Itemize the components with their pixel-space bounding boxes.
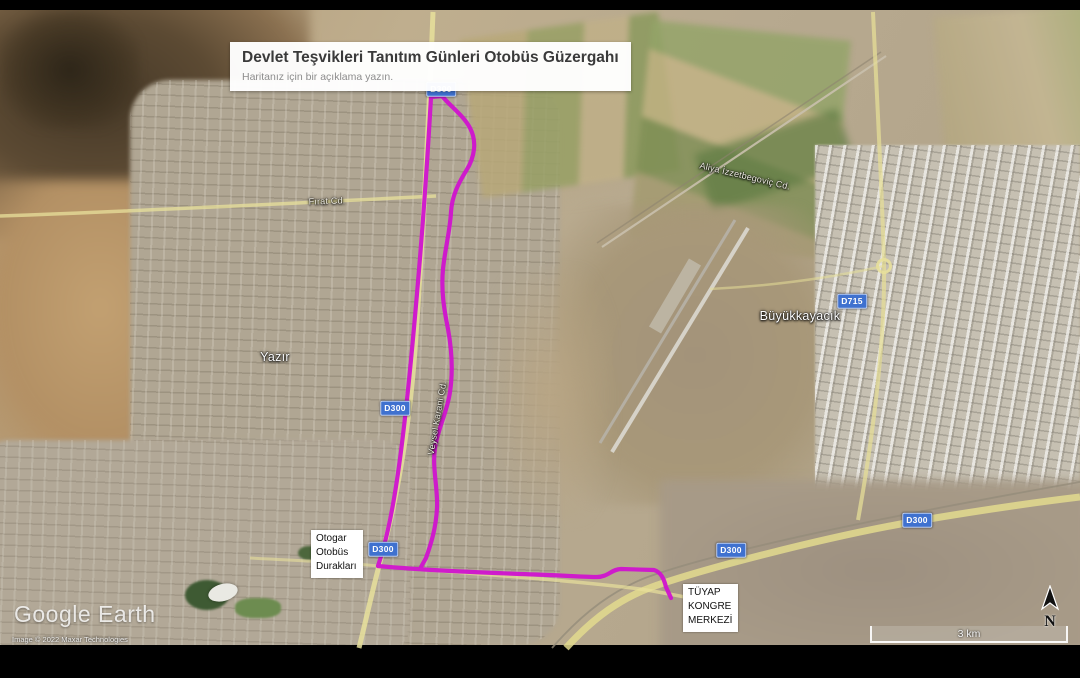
map-title: Devlet Teşvikleri Tanıtım Günleri Otobüs…: [242, 49, 619, 67]
terrain-hills-darkest: [0, 10, 140, 130]
shield-d300-interchange: D300: [716, 543, 746, 558]
compass[interactable]: N: [1037, 585, 1063, 627]
scale-bar-label: 3 km: [958, 628, 981, 640]
shield-d300-east: D300: [902, 513, 932, 528]
road-label-firat: Fırat Cd.: [308, 195, 345, 206]
placemark-otogar[interactable]: Otogar Otobüs Durakları: [311, 530, 363, 578]
north-arrow-icon: [1037, 585, 1063, 611]
map-description-placeholder[interactable]: Haritanız için bir açıklama yazın.: [242, 71, 619, 83]
compass-north-label: N: [1037, 614, 1063, 630]
shield-d300-otogar: D300: [368, 542, 398, 557]
map-title-card[interactable]: Devlet Teşvikleri Tanıtım Günleri Otobüs…: [230, 42, 631, 91]
placemark-tuyap[interactable]: TÜYAP KONGRE MERKEZİ: [683, 584, 738, 632]
place-label-buyukkayacik: Büyükkayacık: [760, 309, 841, 323]
terrain-mid-strip: [490, 270, 610, 520]
shield-d300-mid: D300: [380, 401, 410, 416]
google-earth-window: D300 D300 D300 D300 D300 D715 Yazır Büyü…: [0, 0, 1080, 678]
map-canvas[interactable]: [0, 10, 1080, 645]
shield-d715: D715: [837, 294, 867, 309]
terrain-green-field: [235, 598, 281, 618]
place-label-yazir: Yazır: [260, 350, 290, 364]
imagery-copyright: Image © 2022 Maxar Technologies: [12, 635, 128, 644]
google-earth-logo: Google Earth: [14, 601, 156, 628]
